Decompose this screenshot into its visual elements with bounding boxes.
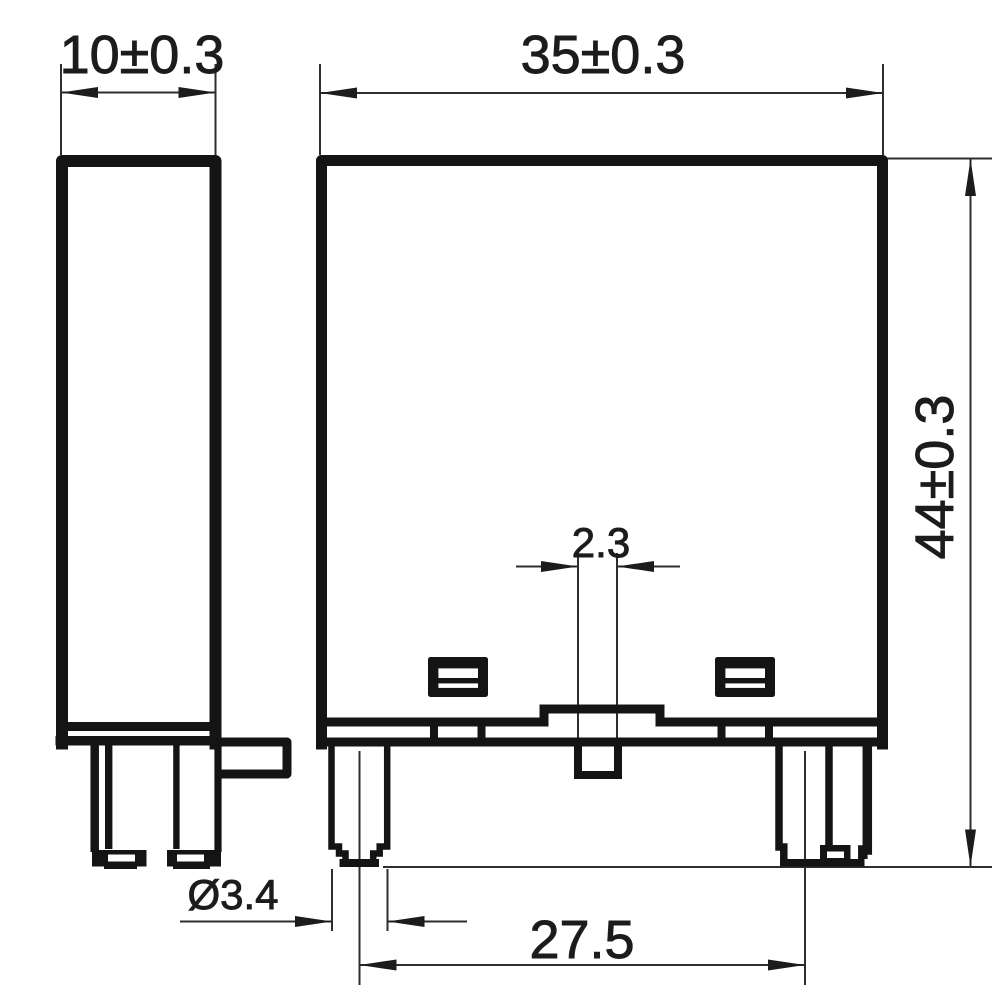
svg-text:44±0.3: 44±0.3: [905, 395, 965, 560]
svg-text:10±0.3: 10±0.3: [60, 25, 225, 85]
svg-text:Ø3.4: Ø3.4: [187, 871, 278, 918]
svg-text:27.5: 27.5: [529, 910, 634, 970]
svg-text:2.3: 2.3: [572, 519, 630, 566]
svg-text:35±0.3: 35±0.3: [521, 25, 686, 85]
